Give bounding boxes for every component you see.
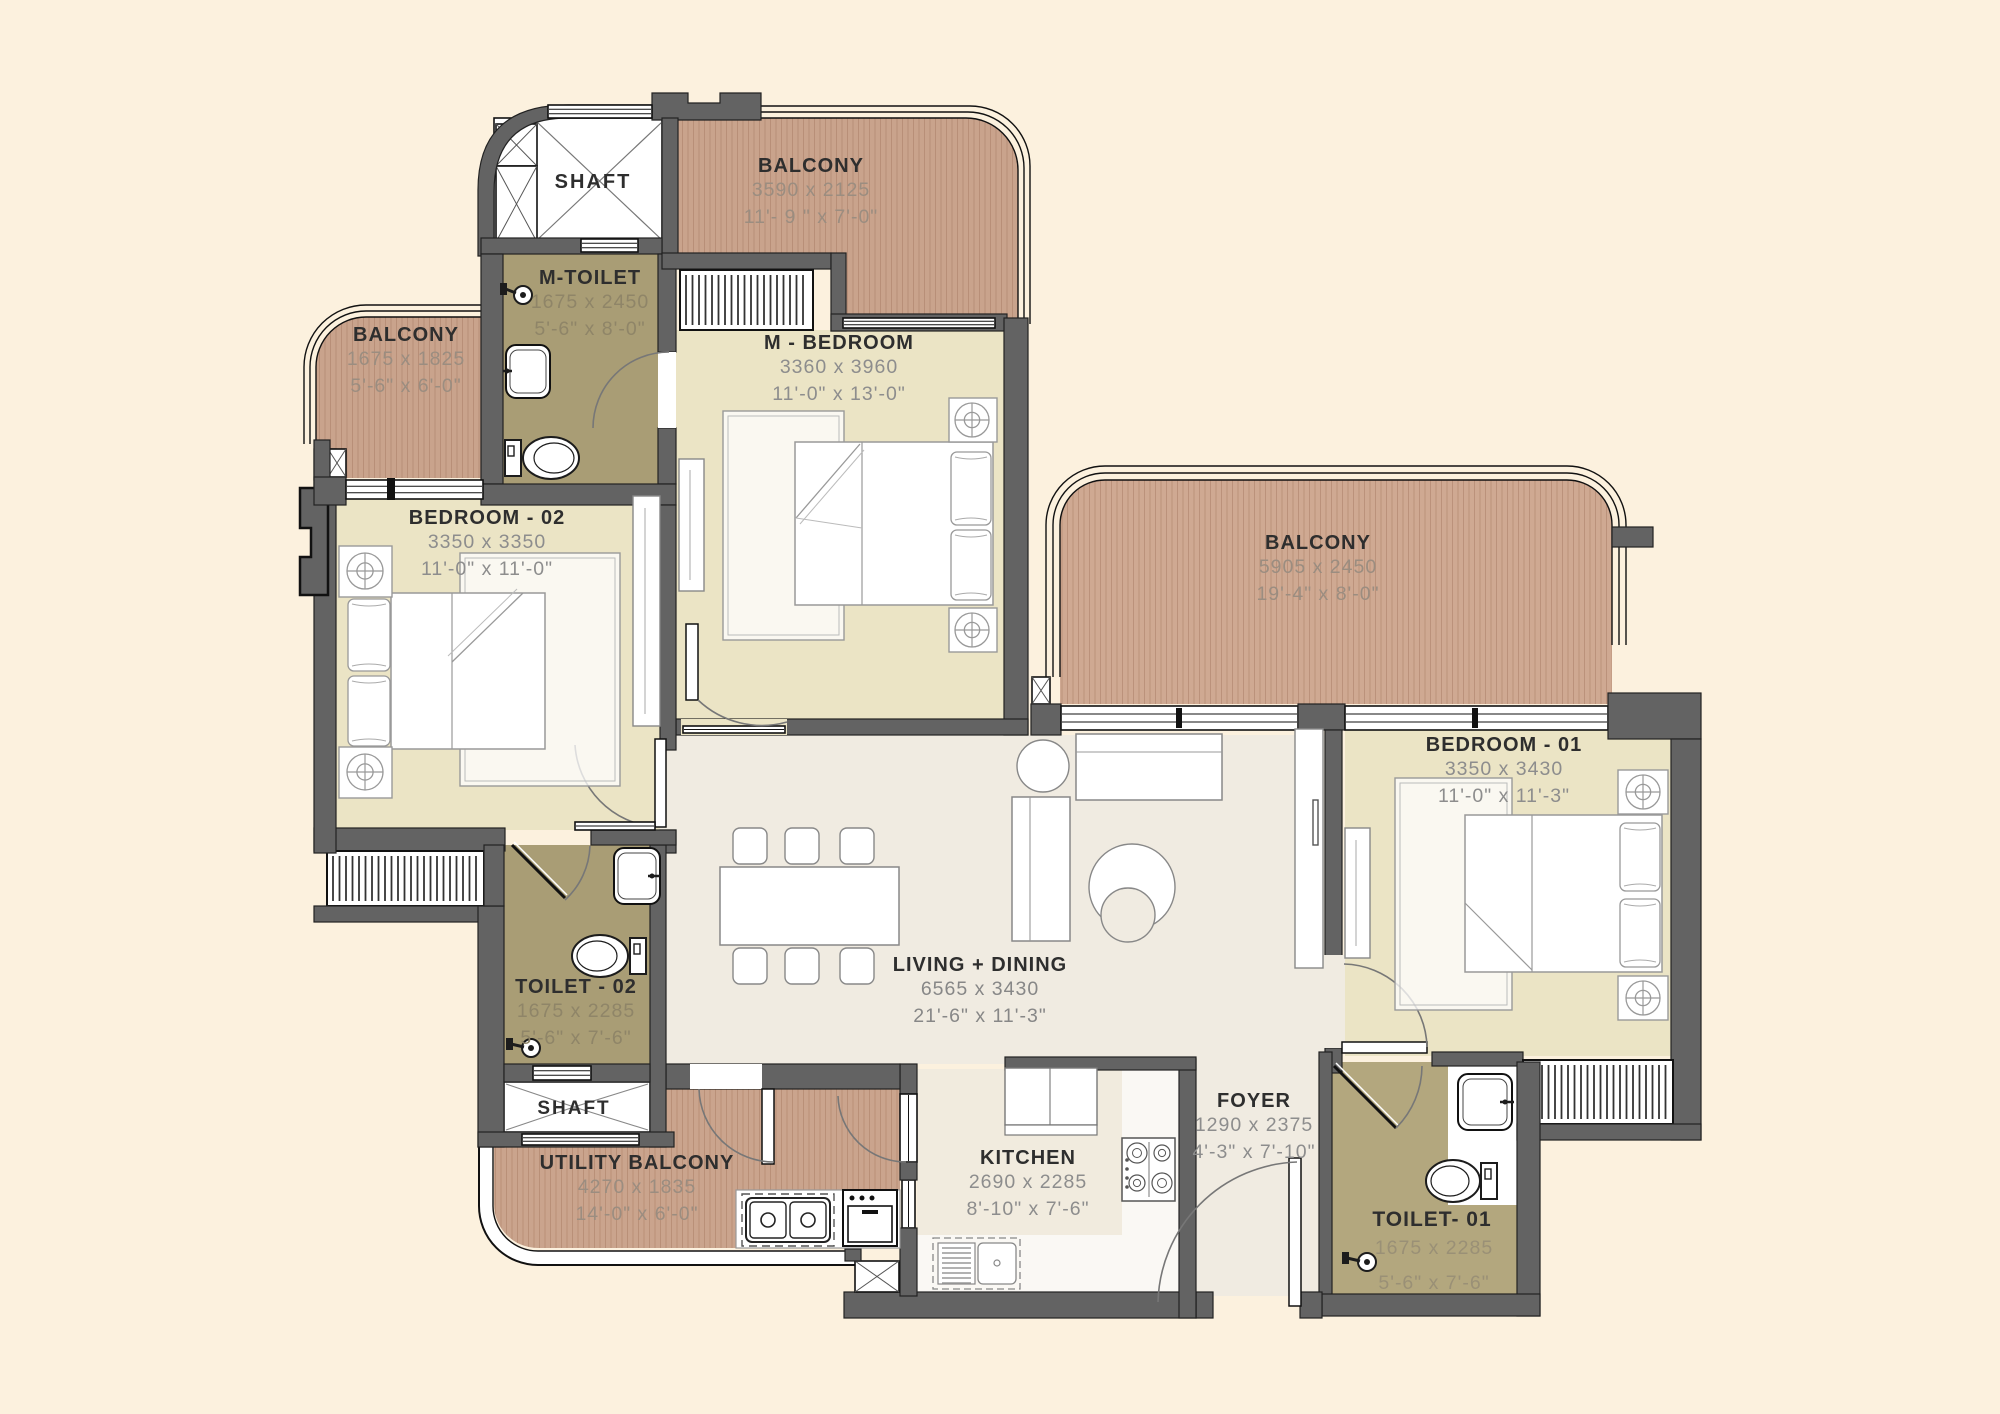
svg-text:11'-0" x 11'-3": 11'-0" x 11'-3" xyxy=(1438,785,1570,807)
svg-text:5'-6" x 7'-6": 5'-6" x 7'-6" xyxy=(520,1027,631,1049)
svg-text:TOILET - 02: TOILET - 02 xyxy=(515,976,637,998)
svg-text:M - BEDROOM: M - BEDROOM xyxy=(764,332,914,354)
svg-text:BEDROOM - 02: BEDROOM - 02 xyxy=(409,507,565,529)
svg-text:4270 x 1835: 4270 x 1835 xyxy=(578,1176,696,1198)
svg-text:1675 x 2285: 1675 x 2285 xyxy=(1375,1237,1493,1259)
svg-text:11'-0" x 11'-0": 11'-0" x 11'-0" xyxy=(421,558,553,580)
svg-text:3350 x 3430: 3350 x 3430 xyxy=(1445,758,1563,780)
svg-text:1675 x 2450: 1675 x 2450 xyxy=(531,291,649,313)
svg-text:BALCONY: BALCONY xyxy=(353,324,459,346)
svg-text:TOILET- 01: TOILET- 01 xyxy=(1372,1208,1491,1231)
svg-text:KITCHEN: KITCHEN xyxy=(980,1147,1076,1169)
svg-text:14'-0" x 6'-0": 14'-0" x 6'-0" xyxy=(575,1203,698,1225)
svg-text:5'-6" x 7'-6": 5'-6" x 7'-6" xyxy=(1378,1272,1489,1294)
svg-text:11'- 9 " x 7'-0": 11'- 9 " x 7'-0" xyxy=(744,206,878,228)
svg-text:8'-10" x 7'-6": 8'-10" x 7'-6" xyxy=(966,1198,1089,1220)
svg-text:BEDROOM - 01: BEDROOM - 01 xyxy=(1426,734,1582,756)
svg-text:4'-3" x 7'-10": 4'-3" x 7'-10" xyxy=(1192,1141,1315,1163)
svg-text:1675 x 1825: 1675 x 1825 xyxy=(347,348,465,370)
svg-text:21'-6" x 11'-3": 21'-6" x 11'-3" xyxy=(913,1005,1047,1027)
svg-text:11'-0" x 13'-0": 11'-0" x 13'-0" xyxy=(772,383,906,405)
svg-text:5905 x 2450: 5905 x 2450 xyxy=(1259,556,1377,578)
svg-text:3360 x 3960: 3360 x 3960 xyxy=(780,356,898,378)
svg-text:3350 x 3350: 3350 x 3350 xyxy=(428,531,546,553)
svg-text:3590 x 2125: 3590 x 2125 xyxy=(752,179,870,201)
svg-text:2690 x 2285: 2690 x 2285 xyxy=(969,1171,1087,1193)
svg-text:5'-6" x 8'-0": 5'-6" x 8'-0" xyxy=(534,318,645,340)
svg-text:SHAFT: SHAFT xyxy=(555,171,632,193)
svg-text:1290 x 2375: 1290 x 2375 xyxy=(1195,1114,1313,1136)
svg-text:19'-4" x 8'-0": 19'-4" x 8'-0" xyxy=(1256,583,1379,605)
svg-text:BALCONY: BALCONY xyxy=(758,155,864,177)
svg-text:SHAFT: SHAFT xyxy=(537,1098,610,1119)
svg-text:6565 x 3430: 6565 x 3430 xyxy=(921,978,1039,1000)
svg-text:1675 x 2285: 1675 x 2285 xyxy=(517,1000,635,1022)
svg-text:LIVING + DINING: LIVING + DINING xyxy=(893,954,1067,976)
svg-text:5'-6" x 6'-0": 5'-6" x 6'-0" xyxy=(350,375,461,397)
svg-text:UTILITY BALCONY: UTILITY BALCONY xyxy=(540,1152,735,1174)
svg-text:M-TOILET: M-TOILET xyxy=(539,267,641,289)
svg-text:BALCONY: BALCONY xyxy=(1265,532,1371,554)
svg-text:FOYER: FOYER xyxy=(1217,1090,1291,1112)
